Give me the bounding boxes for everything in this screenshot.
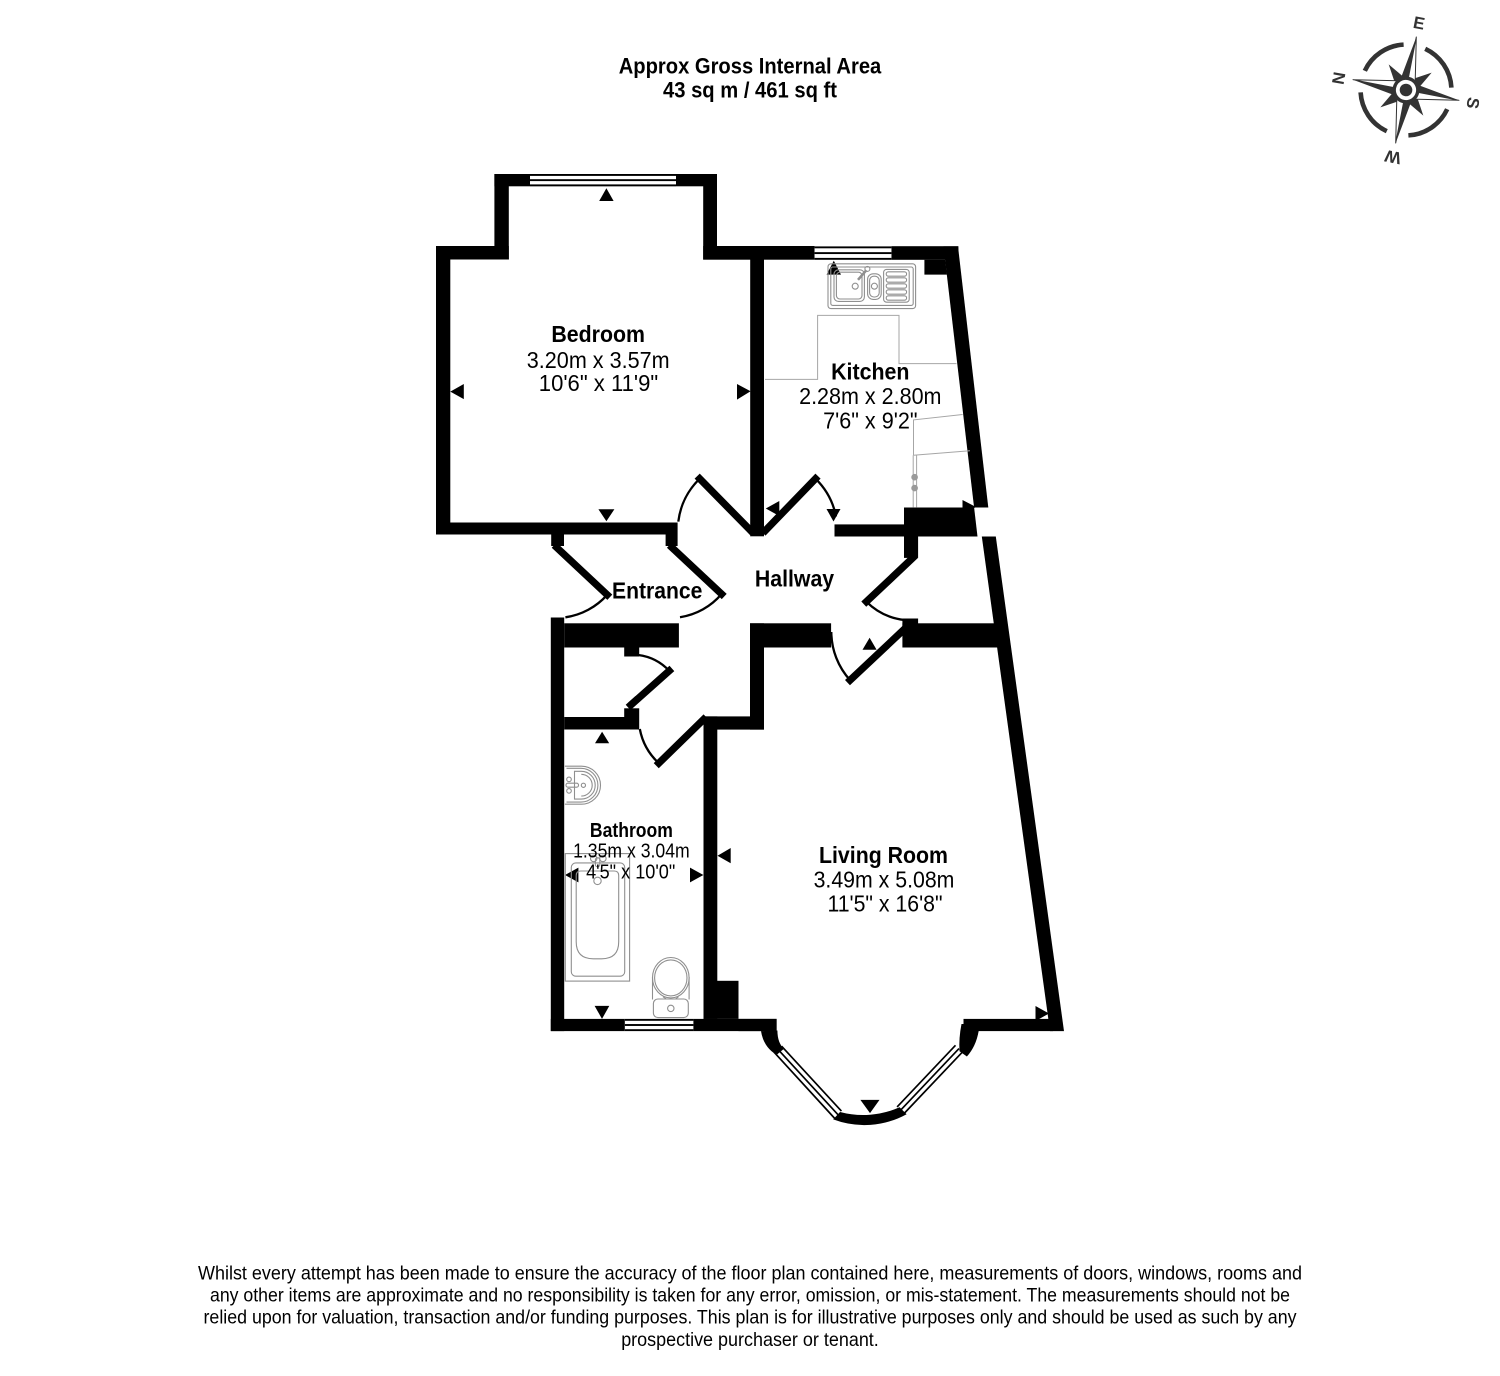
svg-text:3.49m x 5.08m: 3.49m x 5.08m: [814, 867, 955, 893]
svg-text:7'6" x 9'2": 7'6" x 9'2": [823, 408, 917, 434]
svg-text:4'5" x 10'0": 4'5" x 10'0": [586, 862, 675, 884]
svg-text:Living Room: Living Room: [819, 842, 948, 868]
svg-text:11'5" x 16'8": 11'5" x 16'8": [827, 891, 942, 917]
svg-text:43 sq m / 461 sq ft: 43 sq m / 461 sq ft: [663, 78, 837, 103]
svg-text:1.35m x 3.04m: 1.35m x 3.04m: [573, 841, 690, 863]
svg-text:Entrance: Entrance: [612, 577, 702, 603]
svg-text:10'6" x 11'9": 10'6" x 11'9": [539, 370, 658, 396]
svg-text:relied upon for valuation, tra: relied upon for valuation, transaction a…: [204, 1307, 1297, 1329]
svg-text:Bathroom: Bathroom: [590, 820, 673, 842]
svg-text:Bedroom: Bedroom: [551, 321, 645, 347]
svg-text:Whilst every attempt has been: Whilst every attempt has been made to en…: [198, 1263, 1302, 1285]
svg-text:Approx Gross Internal Area: Approx Gross Internal Area: [619, 54, 882, 79]
svg-text:2.28m x 2.80m: 2.28m x 2.80m: [799, 383, 941, 409]
svg-text:any other items are approximat: any other items are approximate and no r…: [210, 1285, 1290, 1307]
svg-text:prospective purchaser or tenan: prospective purchaser or tenant.: [621, 1329, 879, 1351]
svg-text:Kitchen: Kitchen: [831, 359, 909, 385]
svg-text:Hallway: Hallway: [755, 566, 834, 592]
